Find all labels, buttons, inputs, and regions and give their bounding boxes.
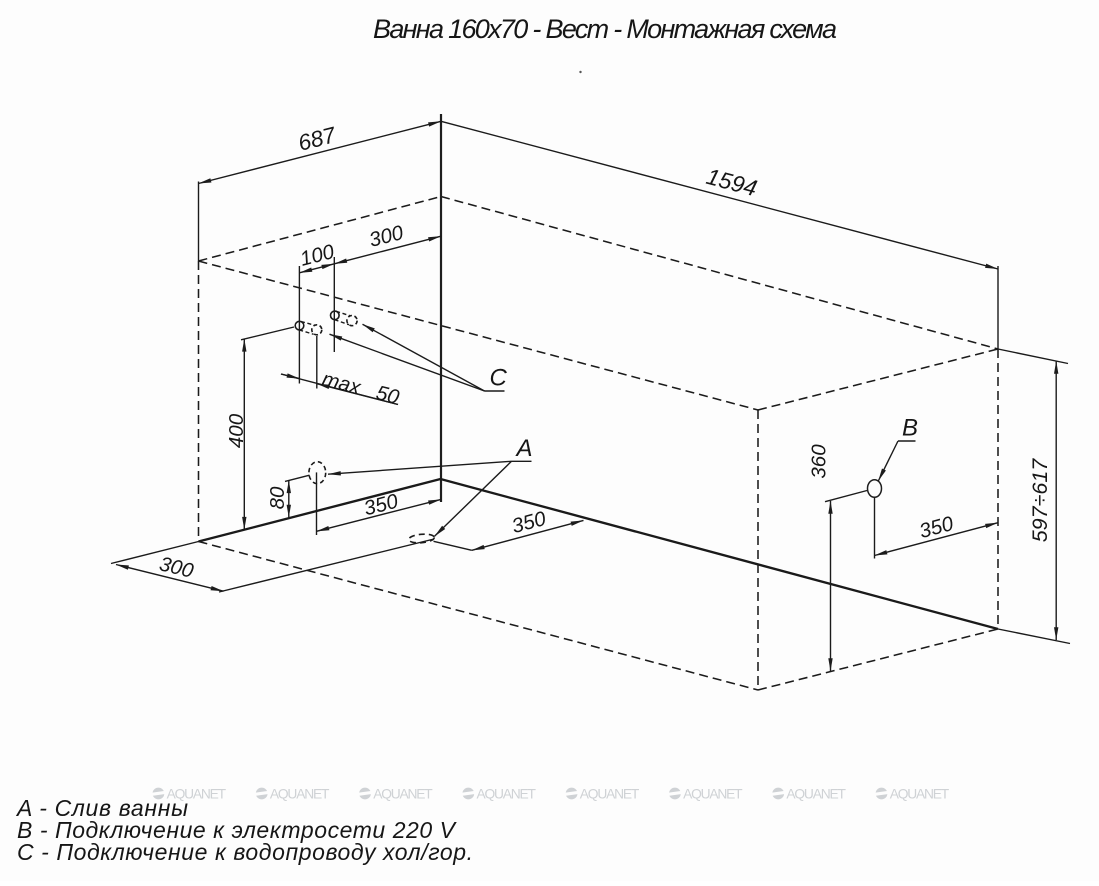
svg-text:350: 350 [509,507,549,538]
svg-text:Ванна 160x70 - Вест - Монтажна: Ванна 160x70 - Вест - Монтажная схема [373,14,837,44]
svg-text:350: 350 [917,512,957,543]
svg-text:C - Подключение к водопроводу: C - Подключение к водопроводу хол/гор. [17,839,473,865]
svg-text:687: 687 [296,122,340,156]
svg-text:AQUANET: AQUANET [683,786,743,801]
svg-text:400: 400 [225,413,248,448]
svg-text:300: 300 [157,552,196,582]
svg-text:AQUANET: AQUANET [373,786,433,801]
svg-text:AQUANET: AQUANET [890,786,950,801]
svg-text:C: C [490,365,508,392]
svg-text:100: 100 [298,240,337,271]
svg-text:AQUANET: AQUANET [786,786,846,801]
svg-text:1594: 1594 [704,163,760,201]
svg-text:AQUANET: AQUANET [477,786,537,801]
svg-text:B: B [902,415,918,442]
svg-text:360: 360 [808,444,831,479]
svg-text:350: 350 [362,489,401,520]
svg-text:AQUANET: AQUANET [580,786,640,801]
svg-text:AQUANET: AQUANET [270,786,330,801]
svg-text:80: 80 [266,486,289,509]
svg-text:max 50: max 50 [320,367,402,409]
svg-text:A: A [515,435,533,462]
svg-text:597÷617: 597÷617 [1028,458,1052,543]
